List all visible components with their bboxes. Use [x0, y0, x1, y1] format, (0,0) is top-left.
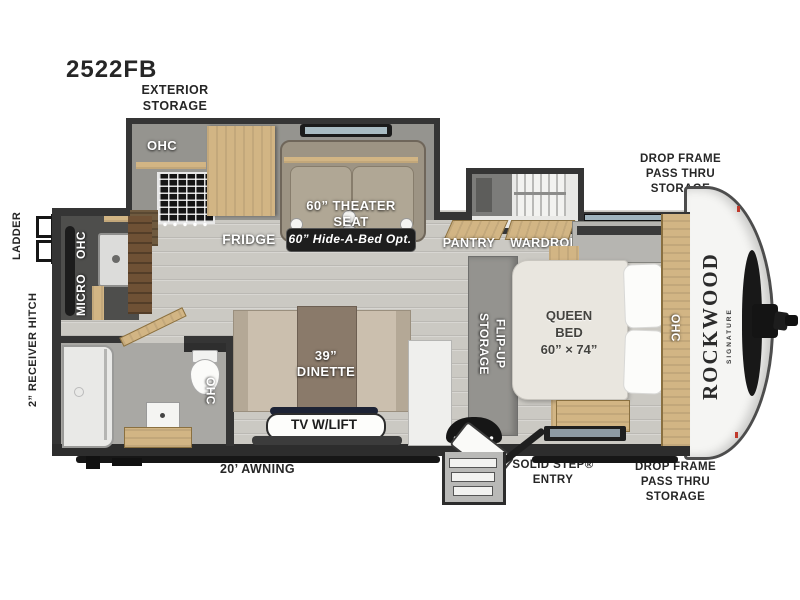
rear-wall	[52, 208, 61, 456]
rear-ohc-label: OHC	[74, 226, 88, 264]
page-title: 2522FB	[66, 54, 157, 85]
queen-bed-label: QUEEN BED 60” × 74”	[512, 308, 626, 359]
brand-series: SIGNATURE	[726, 292, 733, 364]
solid-step-icon	[442, 452, 506, 505]
hitch-icon	[752, 296, 798, 350]
kitchen-island-counter	[207, 126, 275, 216]
pillow-bottom	[623, 329, 665, 394]
rear-cabinet-door	[92, 286, 104, 320]
dresser-tv	[544, 426, 626, 441]
dinette-label: 39” DINETTE	[280, 348, 372, 379]
brand-name: ROCKWOOD	[698, 255, 723, 400]
flip-up-storage-label: FLIP-UP STORAGE	[476, 284, 508, 404]
bed-head-platform	[572, 221, 666, 263]
bath-wall-left	[58, 336, 124, 343]
stabilizer-foot	[86, 456, 100, 469]
fridge-label: FRIDGE	[218, 232, 280, 248]
kitchen-ohc-label: OHC	[138, 138, 186, 154]
theater-window	[300, 124, 392, 137]
awning-label: 20’ AWNING	[200, 461, 315, 477]
theater-seat-label: 60” THEATER SEAT	[283, 198, 419, 229]
receiver-hitch-label: 2” RECEIVER HITCH	[26, 280, 40, 420]
pillow-top	[623, 263, 665, 328]
bedroom-window	[584, 214, 664, 221]
tv-lift-label: TV W/LIFT	[266, 417, 382, 432]
theater-seat-rail	[284, 157, 418, 163]
ladder-label: LADDER	[10, 205, 24, 267]
hall-cabinet	[128, 216, 152, 314]
bath-ohc-label: OHC	[203, 372, 217, 410]
awning-rail-right	[532, 456, 678, 463]
stabilizer-bar	[112, 458, 142, 466]
drop-frame-storage-bottom-label: DROP FRAME PASS THRU STORAGE	[613, 460, 738, 505]
tv-lift-cabinet	[408, 340, 452, 446]
micro-label: MICRO	[74, 270, 88, 320]
floorplan-canvas: 2522FB EXTERIOR STORAGE LADDER 2” RECEIV…	[0, 0, 800, 600]
kitchen-ohc-shelf	[136, 162, 206, 169]
bath-vanity	[124, 427, 192, 448]
bed-ohc-label: OHC	[668, 308, 682, 348]
tv-lift-base	[252, 436, 402, 445]
pantry-label: PANTRY	[432, 236, 506, 251]
rear-shelf	[104, 216, 128, 222]
stove-knobs	[160, 222, 210, 227]
hide-a-bed-label: 60” Hide-A-Bed Opt.	[286, 232, 414, 246]
top-wall-rear-segment	[52, 208, 134, 216]
shower	[62, 345, 114, 448]
cap-marker-bottom	[735, 432, 738, 438]
cap-marker-top	[737, 206, 740, 212]
exterior-storage-label: EXTERIOR STORAGE	[110, 82, 240, 115]
